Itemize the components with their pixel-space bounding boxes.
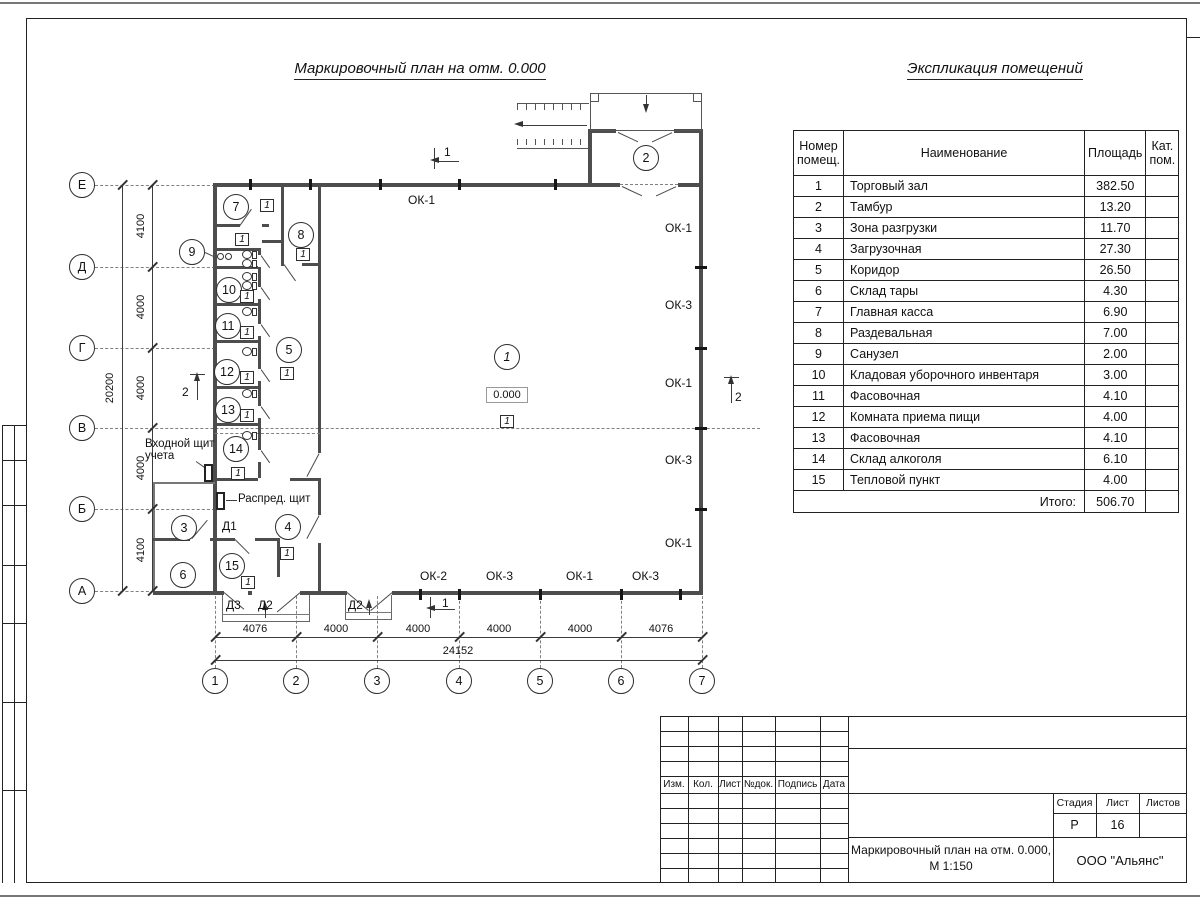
cell-cat <box>1146 281 1179 302</box>
tb-col-kol: Кол. <box>688 779 718 790</box>
section2-arrow <box>194 372 200 381</box>
elevation-mark: 0.000 <box>486 387 528 403</box>
table-row: 9Санузел2.00 <box>794 344 1179 365</box>
door-leaf <box>261 255 271 268</box>
table-row: 8Раздевальная7.00 <box>794 323 1179 344</box>
tb-col-data: Дата <box>820 779 848 790</box>
door-leaf <box>306 515 319 539</box>
toilet-icon <box>242 259 252 268</box>
toilet-icon <box>242 281 252 290</box>
axis-bubble-7: 7 <box>689 668 715 694</box>
table-title: Экспликация помещений <box>907 60 1083 80</box>
table-row: 12Комната приема пищи4.00 <box>794 407 1179 428</box>
window-mark <box>695 347 707 350</box>
room-bubble-6: 6 <box>170 562 196 588</box>
window-label-right: ОК-3 <box>665 453 692 467</box>
cell-name: Комната приема пищи <box>844 407 1085 428</box>
table-row: 11Фасовочная4.10 <box>794 386 1179 407</box>
porch-step <box>222 614 310 615</box>
table-row: 6Склад тары4.30 <box>794 281 1179 302</box>
annex-wall-top <box>153 482 215 484</box>
floor-mark: 1 <box>231 467 245 480</box>
titleblock-line <box>660 776 848 777</box>
titleblock-line <box>848 837 1187 838</box>
hall-wall <box>318 183 321 453</box>
strip-wall <box>215 340 258 343</box>
floor-mark: 1 <box>241 576 255 589</box>
window-label-bottom: ОК-2 <box>420 569 447 583</box>
window-mark <box>539 589 542 600</box>
cell-cat <box>1146 365 1179 386</box>
cell-num: 15 <box>794 470 844 491</box>
room15-wall-top <box>215 538 235 541</box>
table-row: 3Зона разгрузки11.70 <box>794 218 1179 239</box>
sheet-top-edge <box>0 2 1200 4</box>
col-header-cat: Кат. пом. <box>1146 131 1179 176</box>
drawing-sheet: Маркировочный план на отм. 0.000 Эксплик… <box>0 0 1200 900</box>
cell-name: Санузел <box>844 344 1085 365</box>
dim-bottom-3: 4000 <box>393 623 443 635</box>
cell-cat <box>1146 470 1179 491</box>
table-header-row: Номер помещ. Наименование Площадь Кат. п… <box>794 131 1179 176</box>
cell-area: 7.00 <box>1085 323 1146 344</box>
margin-stamp-line <box>2 460 27 461</box>
room8-wall-left <box>281 183 284 266</box>
total-value: 506.70 <box>1085 491 1146 513</box>
door-leaf <box>618 132 638 142</box>
cell-area: 27.30 <box>1085 239 1146 260</box>
floor-mark: 1 <box>500 415 514 428</box>
window-mark <box>458 589 461 600</box>
cell-area: 6.90 <box>1085 302 1146 323</box>
cell-area: 4.00 <box>1085 407 1146 428</box>
room-bubble-8: 8 <box>288 222 314 248</box>
titleblock-line <box>820 716 821 883</box>
window-label-top: ОК-1 <box>408 193 435 207</box>
titleblock-line <box>775 716 776 883</box>
corridor-wall <box>258 462 261 478</box>
window-mark <box>554 179 557 190</box>
table-row: 2Тамбур13.20 <box>794 197 1179 218</box>
frame-bottom <box>26 882 1187 883</box>
titleblock-line <box>660 761 848 762</box>
annex-wall-bottom <box>153 591 217 595</box>
window-mark <box>695 266 707 269</box>
sheets-label: Листов <box>1139 797 1187 809</box>
titleblock-line <box>660 823 848 824</box>
cell-name: Тамбур <box>844 197 1085 218</box>
floor-mark: 1 <box>240 326 254 339</box>
window-mark <box>458 179 461 190</box>
door-leaf <box>261 406 271 419</box>
dim-left-2: 4000 <box>135 287 147 327</box>
margin-stamp-line <box>2 623 27 624</box>
room-bubble-3: 3 <box>171 515 197 541</box>
cell-cat <box>1146 428 1179 449</box>
ramp-arrow-line <box>519 125 587 126</box>
porch-corner <box>693 93 702 102</box>
tambour-wall-bottom <box>678 183 702 187</box>
cell-cat <box>1146 407 1179 428</box>
door-leaf <box>284 264 296 281</box>
room-bubble-7: 7 <box>223 194 249 220</box>
room7-wall <box>262 224 269 227</box>
cell-area: 6.10 <box>1085 449 1146 470</box>
axis-bubble-V: В <box>69 415 95 441</box>
cell-name: Торговый зал <box>844 176 1085 197</box>
cell-num: 7 <box>794 302 844 323</box>
cell-cat <box>1146 302 1179 323</box>
room-schedule-table: Номер помещ. Наименование Площадь Кат. п… <box>793 130 1179 513</box>
cell-name: Фасовочная <box>844 386 1085 407</box>
section1-label: 1 <box>444 145 451 159</box>
floor-mark: 1 <box>296 248 310 261</box>
dim-bottom-2: 4000 <box>311 623 361 635</box>
ramp-hatch <box>517 139 589 145</box>
leader-line <box>226 500 237 501</box>
titleblock-line <box>742 716 743 883</box>
cell-area: 4.00 <box>1085 470 1146 491</box>
window-mark <box>679 589 682 600</box>
dim-left-total: 20200 <box>104 366 116 410</box>
axis-bubble-5: 5 <box>527 668 553 694</box>
window-label-right: ОК-1 <box>665 221 692 235</box>
toilet-icon <box>252 308 257 316</box>
floor-mark: 1 <box>235 233 249 246</box>
dim-bottom-6: 4076 <box>636 623 686 635</box>
dim-bottom-total: 24152 <box>433 645 483 657</box>
cell-area: 3.00 <box>1085 365 1146 386</box>
sheet-label: Лист <box>1096 797 1139 809</box>
cell-num: 6 <box>794 281 844 302</box>
window-mark <box>419 589 422 600</box>
tb-col-list: Лист <box>718 779 742 790</box>
frame-top <box>26 18 1187 19</box>
section2-arrow <box>728 375 734 384</box>
cell-num: 8 <box>794 323 844 344</box>
toilet-icon <box>252 432 257 440</box>
door-leaf <box>235 539 250 554</box>
dim-left-1: 4100 <box>135 206 147 246</box>
door-label-d2: Д2 <box>258 598 273 612</box>
wall-right <box>699 129 703 595</box>
door-leaf <box>306 453 319 477</box>
cell-num: 10 <box>794 365 844 386</box>
strip-wall <box>215 423 258 426</box>
frame-right <box>1186 18 1187 883</box>
axis-line-B <box>95 509 215 510</box>
section1-arrow <box>430 157 439 163</box>
corner-format-box <box>1186 18 1200 38</box>
wall-top <box>215 183 592 187</box>
axis-line-D <box>95 267 215 268</box>
window-label-bottom: ОК-3 <box>486 569 513 583</box>
window-label-bottom: ОК-3 <box>632 569 659 583</box>
room8-wall-bottom <box>302 263 320 266</box>
tambour-wall-bottom <box>592 183 620 187</box>
cell-name: Загрузочная <box>844 239 1085 260</box>
cell-num: 13 <box>794 428 844 449</box>
cell-num: 5 <box>794 260 844 281</box>
wall-bottom <box>392 591 702 595</box>
toilet-icon <box>252 251 257 259</box>
room-bubble-2: 2 <box>633 145 659 171</box>
toilet-icon <box>252 273 257 281</box>
toilet-icon <box>242 272 252 281</box>
titleblock-line <box>660 716 661 883</box>
plan-title: Маркировочный план на отм. 0.000 <box>294 60 545 80</box>
strip-wall <box>215 303 258 306</box>
table-title-wrap: Экспликация помещений <box>850 60 1140 80</box>
company-name: ООО "Альянс" <box>1053 853 1187 868</box>
titleblock-line <box>660 793 1187 794</box>
axis-bubble-A: А <box>69 578 95 604</box>
window-label-right: ОК-1 <box>665 376 692 390</box>
titleblock-line <box>660 746 848 747</box>
room-bubble-4: 4 <box>275 514 301 540</box>
cell-num: 12 <box>794 407 844 428</box>
door-leaf <box>261 369 271 382</box>
titleblock-line <box>1053 813 1187 814</box>
distribution-panel-symbol <box>216 492 225 510</box>
titleblock-line <box>848 748 1187 749</box>
floor-mark: 1 <box>280 547 294 560</box>
floor-mark: 1 <box>240 290 254 303</box>
cell-cat <box>1146 239 1179 260</box>
door-label-d3: Д3 <box>226 598 241 612</box>
axis-bubble-3: 3 <box>364 668 390 694</box>
door-leaf <box>656 186 676 196</box>
toilet-icon <box>252 260 257 268</box>
axis-bubble-6: 6 <box>608 668 634 694</box>
dim-bottom-1: 4076 <box>230 623 280 635</box>
cell-num: 4 <box>794 239 844 260</box>
margin-stamp-line <box>2 790 27 791</box>
cell-name: Кладовая уборочного инвентаря <box>844 365 1085 386</box>
col-header-num: Номер помещ. <box>794 131 844 176</box>
margin-stamp-line <box>2 425 3 883</box>
titleblock-line <box>660 808 848 809</box>
axis-bubble-D: Д <box>69 254 95 280</box>
cell-cat <box>1146 218 1179 239</box>
axis-line-E <box>95 185 215 186</box>
toilet-icon <box>242 250 252 259</box>
section2-label: 2 <box>182 385 189 399</box>
section2-label: 2 <box>735 390 742 404</box>
table-row: 10Кладовая уборочного инвентаря3.00 <box>794 365 1179 386</box>
room14-dashed-boundary <box>215 433 320 434</box>
margin-stamp-line <box>2 425 27 426</box>
cell-area: 2.00 <box>1085 344 1146 365</box>
col-header-name: Наименование <box>844 131 1085 176</box>
room-bubble-10: 10 <box>216 277 242 303</box>
axis-line-G <box>95 348 215 349</box>
cell-cat <box>1146 176 1179 197</box>
cell-area: 13.20 <box>1085 197 1146 218</box>
corridor-wall <box>258 381 261 406</box>
corridor-wall <box>258 418 261 450</box>
floor-mark: 1 <box>280 367 294 380</box>
titleblock-line <box>718 716 719 883</box>
cell-num: 11 <box>794 386 844 407</box>
window-mark <box>249 179 252 190</box>
dim-left-5: 4100 <box>135 530 147 570</box>
hall-wall <box>318 478 321 515</box>
section1-label: 1 <box>442 596 449 610</box>
room-bubble-5: 5 <box>276 337 302 363</box>
toilet-icon <box>242 307 252 316</box>
cell-area: 4.30 <box>1085 281 1146 302</box>
titleblock-line <box>660 838 848 839</box>
axis-bubble-B: Б <box>69 496 95 522</box>
table-row: 13Фасовочная4.10 <box>794 428 1179 449</box>
cell-num: 2 <box>794 197 844 218</box>
stage-label: Стадия <box>1053 797 1096 809</box>
cell-area: 26.50 <box>1085 260 1146 281</box>
table-row: 1Торговый зал382.50 <box>794 176 1179 197</box>
toilet-icon <box>242 347 252 356</box>
cell-name: Фасовочная <box>844 428 1085 449</box>
tambour-door-bottom <box>620 184 678 185</box>
dim-bottom-4: 4000 <box>474 623 524 635</box>
strip-wall <box>215 386 258 389</box>
window-label-right: ОК-3 <box>665 298 692 312</box>
table-total-row: Итого: 506.70 <box>794 491 1179 513</box>
cell-name: Раздевальная <box>844 323 1085 344</box>
porch-corner <box>590 93 599 102</box>
dim-line-left-total <box>122 185 123 591</box>
corridor-wall <box>258 248 261 255</box>
entry-panel-label: учета <box>145 450 174 462</box>
entry-panel-label: Входной щит <box>145 438 215 450</box>
col-header-area: Площадь <box>1085 131 1146 176</box>
cell-cat <box>1146 491 1179 513</box>
section1-arrow <box>426 605 435 611</box>
cell-name: Тепловой пункт <box>844 470 1085 491</box>
tb-col-podpis: Подпись <box>775 779 820 790</box>
entrance-arrow <box>643 104 649 113</box>
tb-col-ndok: №док. <box>742 779 775 790</box>
table-row: 15Тепловой пункт4.00 <box>794 470 1179 491</box>
toilet-icon <box>252 282 257 290</box>
door-label-d2: Д2 <box>348 598 363 612</box>
sheet-value: 16 <box>1096 818 1139 832</box>
cell-num: 14 <box>794 449 844 470</box>
margin-stamp-line <box>2 702 27 703</box>
margin-stamp-line <box>2 565 27 566</box>
floor-mark: 1 <box>240 409 254 422</box>
floor-mark: 1 <box>240 371 254 384</box>
cell-name: Склад алкоголя <box>844 449 1085 470</box>
door-leaf <box>261 324 271 337</box>
room-bubble-1: 1 <box>494 344 520 370</box>
titleblock-line <box>660 868 848 869</box>
axis-bubble-G: Г <box>69 335 95 361</box>
window-mark <box>309 179 312 190</box>
corridor-end-wall <box>290 478 320 481</box>
titleblock-line <box>660 716 1187 717</box>
cell-cat <box>1146 323 1179 344</box>
floor-mark: 1 <box>260 199 274 212</box>
corridor-wall <box>258 267 261 287</box>
frame-left <box>26 18 27 883</box>
sheet-bottom-edge <box>0 895 1200 897</box>
room-bubble-11: 11 <box>215 313 241 339</box>
sink-icon <box>217 253 224 260</box>
doc-title-line2: М 1:150 <box>850 859 1052 873</box>
cell-num: 3 <box>794 218 844 239</box>
room-bubble-9: 9 <box>179 239 205 265</box>
cell-area: 4.10 <box>1085 386 1146 407</box>
toilet-icon <box>252 348 257 356</box>
toilet-icon <box>252 390 257 398</box>
table-row: 4Загрузочная27.30 <box>794 239 1179 260</box>
cell-cat <box>1146 344 1179 365</box>
titleblock-line <box>848 716 849 883</box>
axis-line-5 <box>540 596 541 668</box>
cell-area: 11.70 <box>1085 218 1146 239</box>
door-label-d1: Д1 <box>222 519 237 533</box>
titleblock-line <box>688 716 689 883</box>
toilet-icon <box>242 389 252 398</box>
dim-line-bottom-total <box>215 660 702 661</box>
margin-stamp-line <box>2 505 27 506</box>
window-mark <box>379 179 382 190</box>
entry-panel-symbol <box>204 464 213 482</box>
tb-col-izm: Изм. <box>660 779 688 790</box>
cell-name: Склад тары <box>844 281 1085 302</box>
cell-cat <box>1146 386 1179 407</box>
axis-bubble-1: 1 <box>202 668 228 694</box>
corridor-wall <box>258 336 261 369</box>
margin-stamp-line <box>14 425 15 883</box>
axis-bubble-4: 4 <box>446 668 472 694</box>
cell-num: 9 <box>794 344 844 365</box>
doc-title-line1: Маркировочный план на отм. 0.000, <box>850 843 1052 857</box>
cell-cat <box>1146 197 1179 218</box>
cell-num: 1 <box>794 176 844 197</box>
wall-left <box>213 183 217 595</box>
cell-area: 382.50 <box>1085 176 1146 197</box>
cell-name: Коридор <box>844 260 1085 281</box>
room7-wall <box>215 224 240 227</box>
total-label: Итого: <box>794 491 1085 513</box>
ramp-arrow <box>514 121 523 127</box>
door-leaf <box>261 450 271 463</box>
door-leaf <box>652 132 672 142</box>
dim-left-3: 4000 <box>135 368 147 408</box>
wall-jog <box>262 240 284 243</box>
table-row: 5Коридор26.50 <box>794 260 1179 281</box>
cell-area: 4.10 <box>1085 428 1146 449</box>
door-leaf <box>622 186 642 196</box>
axis-bubble-E: Е <box>69 172 95 198</box>
hall-wall <box>318 543 321 595</box>
room-bubble-12: 12 <box>214 359 240 385</box>
room-bubble-14: 14 <box>223 436 249 462</box>
axis-line-V <box>95 428 760 429</box>
axis-bubble-2: 2 <box>283 668 309 694</box>
door-leaf <box>261 287 271 300</box>
cell-cat <box>1146 449 1179 470</box>
window-label-bottom: ОК-1 <box>566 569 593 583</box>
porch-arrow <box>366 599 372 608</box>
plan-title-wrap: Маркировочный план на отм. 0.000 <box>250 60 590 80</box>
window-mark <box>620 589 623 600</box>
dim-bottom-5: 4000 <box>555 623 605 635</box>
titleblock-line <box>660 731 848 732</box>
titleblock-line <box>660 853 848 854</box>
